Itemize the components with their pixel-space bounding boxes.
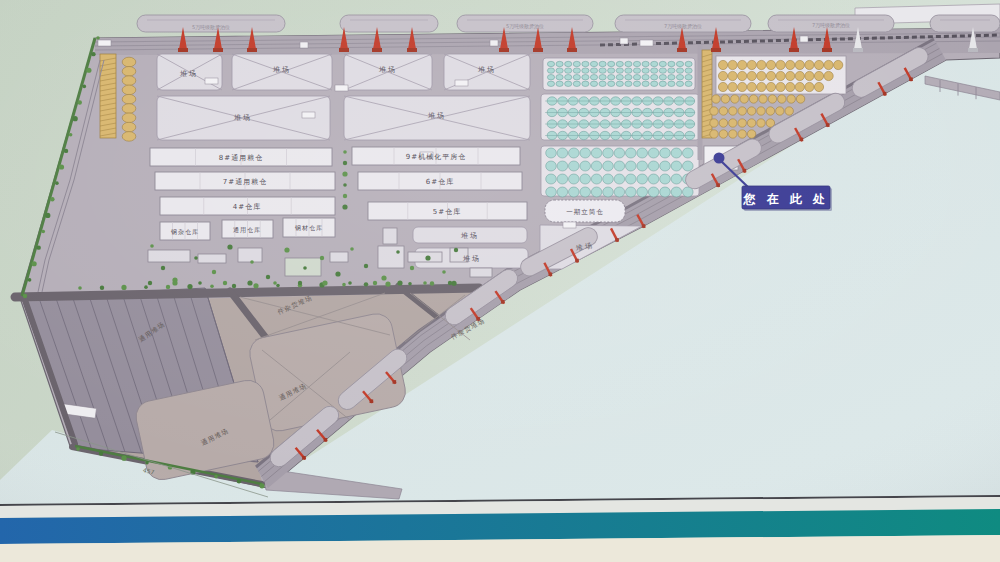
photo-sheen bbox=[0, 0, 1000, 505]
port-map-sign-photo: 堆场 堆场 堆场 堆场 堆场 堆场 堆场 堆场 堆场 8#通用粮仓 9#机械化平… bbox=[0, 0, 1000, 562]
port-site-plan: 堆场 堆场 堆场 堆场 堆场 堆场 堆场 堆场 堆场 8#通用粮仓 9#机械化平… bbox=[0, 0, 1000, 562]
